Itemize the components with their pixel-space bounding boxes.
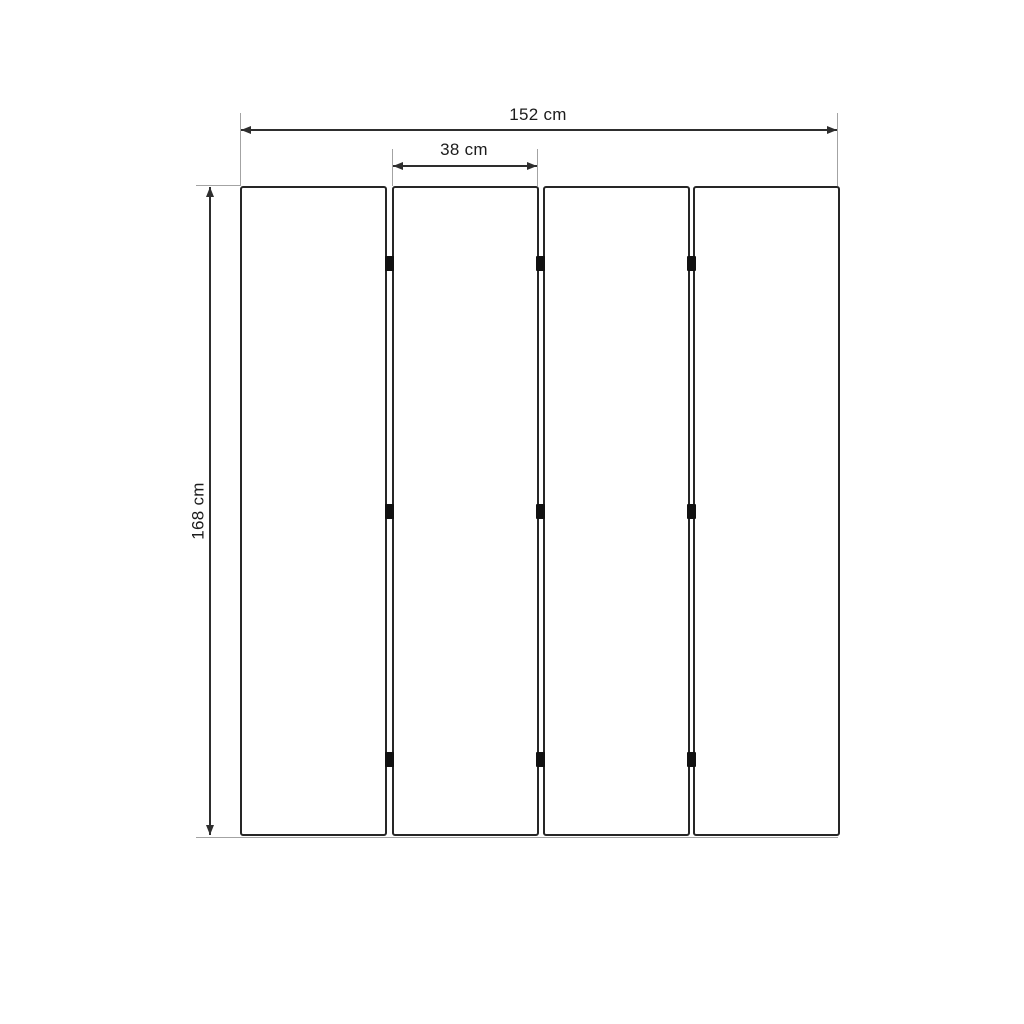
hinge (385, 504, 394, 519)
arrow-left-icon (241, 126, 251, 134)
panel-width-label: 38 cm (440, 141, 488, 158)
hinge (687, 504, 696, 519)
extension-line-baseline (196, 837, 838, 838)
extension-line-total-right (837, 113, 838, 186)
hinge (536, 504, 545, 519)
hinge (687, 752, 696, 767)
arrow-left-icon (393, 162, 403, 170)
hinge (536, 752, 545, 767)
dimension-line-height (209, 187, 211, 835)
total-width-label: 152 cm (509, 106, 567, 123)
dimension-line-panel-width (393, 165, 537, 167)
arrow-down-icon (206, 825, 214, 835)
screen-panel-1 (240, 186, 387, 836)
height-label: 168 cm (190, 482, 207, 540)
screen-panel-4 (693, 186, 840, 836)
arrow-right-icon (827, 126, 837, 134)
arrow-right-icon (527, 162, 537, 170)
extension-line-total-left (240, 113, 241, 186)
extension-line-panel-right (537, 149, 538, 186)
dimension-diagram: 152 cm 38 cm 168 cm (0, 0, 1024, 1024)
hinge (385, 256, 394, 271)
dimension-line-total-width (241, 129, 837, 131)
hinge (536, 256, 545, 271)
screen-panel-3 (543, 186, 690, 836)
screen-panel-2 (392, 186, 539, 836)
extension-line-height-top (196, 185, 240, 186)
arrow-up-icon (206, 187, 214, 197)
hinge (687, 256, 696, 271)
hinge (385, 752, 394, 767)
